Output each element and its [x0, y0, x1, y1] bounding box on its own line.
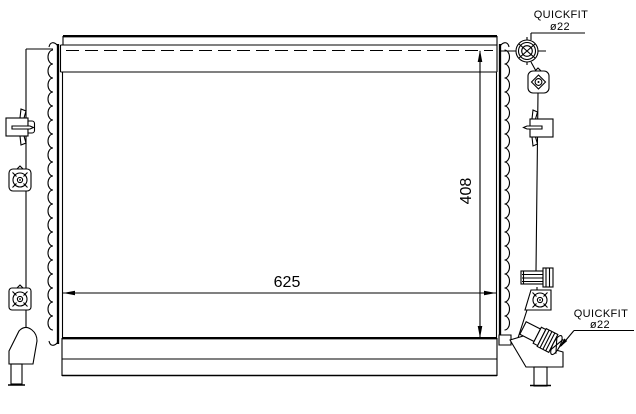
quickfit-bottom-diameter: ø22	[590, 319, 610, 331]
dim-arrow-right-icon	[484, 291, 496, 296]
left-mounting-brackets	[6, 49, 53, 385]
dim-arrow-left-icon	[63, 291, 75, 296]
right-boss-bracket-lower	[525, 290, 551, 310]
dim-arrow-down-icon	[478, 326, 483, 338]
right-boss-bracket	[528, 68, 549, 93]
left-scalloped-edge	[48, 50, 53, 330]
right-scalloped-edge	[505, 50, 510, 330]
drawing-canvas: 625 408	[0, 0, 636, 414]
left-mounting-foot	[8, 327, 37, 385]
dim-arrow-up-icon	[478, 50, 483, 62]
radiator-technical-drawing: 625 408	[0, 0, 636, 414]
width-dimension: 625	[63, 274, 496, 295]
bottom-tank	[62, 338, 497, 376]
quickfit-top-diameter: ø22	[550, 21, 570, 33]
right-side-channel	[499, 43, 511, 345]
left-boss-bracket-upper	[9, 166, 31, 191]
quickfit-top-callout: QUICKFIT ø22	[531, 9, 588, 40]
right-side-components	[501, 37, 564, 386]
quickfit-bottom-callout: QUICKFIT ø22	[559, 308, 634, 348]
top-tank	[61, 36, 498, 72]
height-dimension: 408	[458, 50, 482, 338]
left-boss-bracket-lower	[9, 285, 31, 310]
quickfit-top-label: QUICKFIT	[534, 9, 589, 21]
height-dimension-label: 408	[458, 178, 475, 205]
left-clip-bracket	[6, 109, 35, 145]
right-channel-foot	[499, 335, 511, 345]
bleed-fitting	[521, 268, 553, 287]
radiator-core	[63, 72, 497, 338]
width-dimension-label: 625	[274, 274, 301, 291]
left-side-channel	[48, 43, 58, 346]
top-pipe-fitting	[501, 37, 546, 65]
